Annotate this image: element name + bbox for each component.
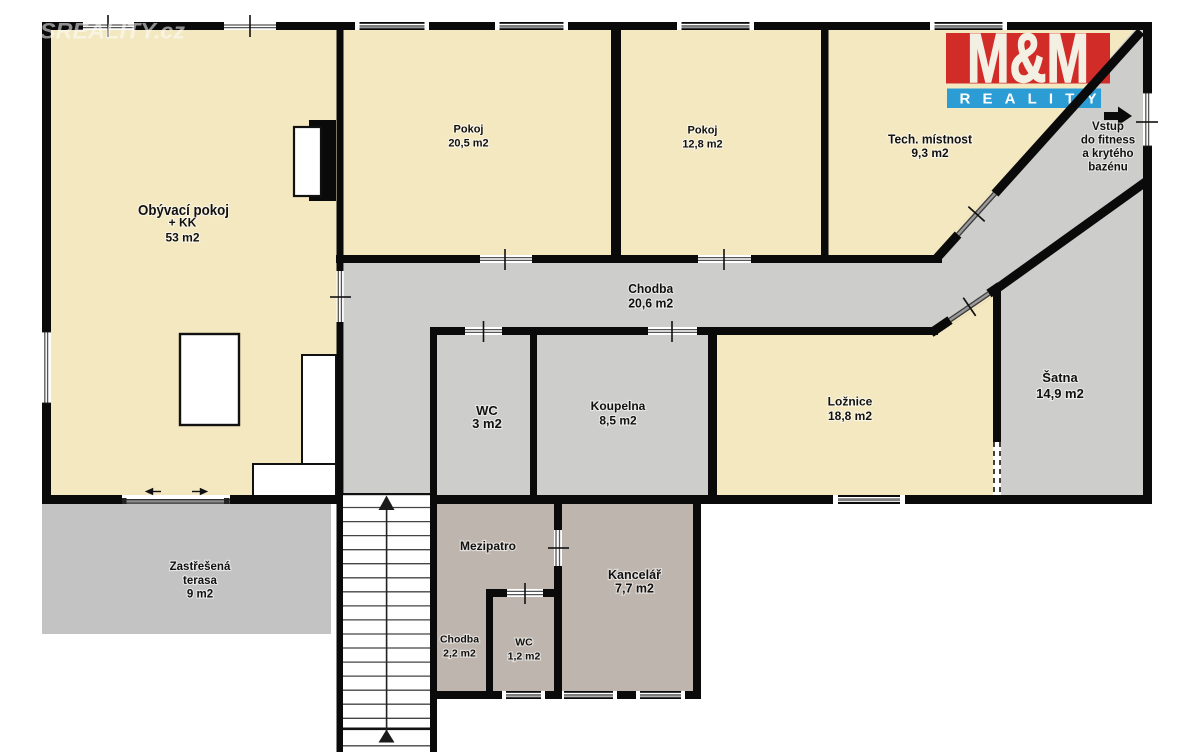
svg-text:20,6 m2: 20,6 m2	[628, 296, 673, 311]
svg-text:14,9 m2: 14,9 m2	[1036, 386, 1084, 401]
svg-text:53 m2: 53 m2	[165, 231, 199, 245]
svg-text:18,8 m2: 18,8 m2	[828, 409, 872, 423]
svg-text:Vstup: Vstup	[1092, 121, 1124, 133]
svg-text:do fitness: do fitness	[1081, 135, 1135, 147]
svg-text:bazénu: bazénu	[1088, 162, 1128, 174]
svg-text:2,2 m2: 2,2 m2	[443, 648, 476, 660]
svg-text:Šatna: Šatna	[1042, 370, 1078, 385]
svg-text:terasa: terasa	[183, 575, 217, 587]
svg-text:Chodba: Chodba	[628, 281, 674, 296]
svg-text:3 m2: 3 m2	[472, 416, 502, 431]
svg-text:9 m2: 9 m2	[187, 589, 213, 601]
svg-text:M&M: M&M	[967, 19, 1089, 97]
svg-text:8,5 m2: 8,5 m2	[599, 414, 637, 428]
svg-text:a krytého: a krytého	[1082, 148, 1133, 160]
svg-text:WC: WC	[515, 637, 533, 649]
svg-text:Pokoj: Pokoj	[688, 125, 718, 137]
svg-text:7,7 m2: 7,7 m2	[615, 582, 654, 596]
svg-text:Mezipatro: Mezipatro	[460, 539, 516, 553]
svg-text:Zastřešená: Zastřešená	[170, 561, 231, 573]
svg-text:Koupelna: Koupelna	[591, 399, 646, 413]
svg-text:9,3 m2: 9,3 m2	[911, 146, 949, 160]
svg-text:SREALITY.cz: SREALITY.cz	[40, 19, 186, 44]
svg-text:1,2 m2: 1,2 m2	[508, 651, 541, 663]
svg-text:+ KK: + KK	[169, 216, 197, 230]
svg-text:Ložnice: Ložnice	[828, 395, 873, 409]
svg-text:12,8 m2: 12,8 m2	[682, 139, 722, 151]
svg-text:20,5 m2: 20,5 m2	[448, 138, 488, 150]
svg-text:Kancelář: Kancelář	[608, 568, 661, 582]
svg-text:Chodba: Chodba	[440, 634, 479, 646]
svg-text:Pokoj: Pokoj	[454, 124, 484, 136]
svg-text:Tech. místnost: Tech. místnost	[888, 132, 973, 147]
